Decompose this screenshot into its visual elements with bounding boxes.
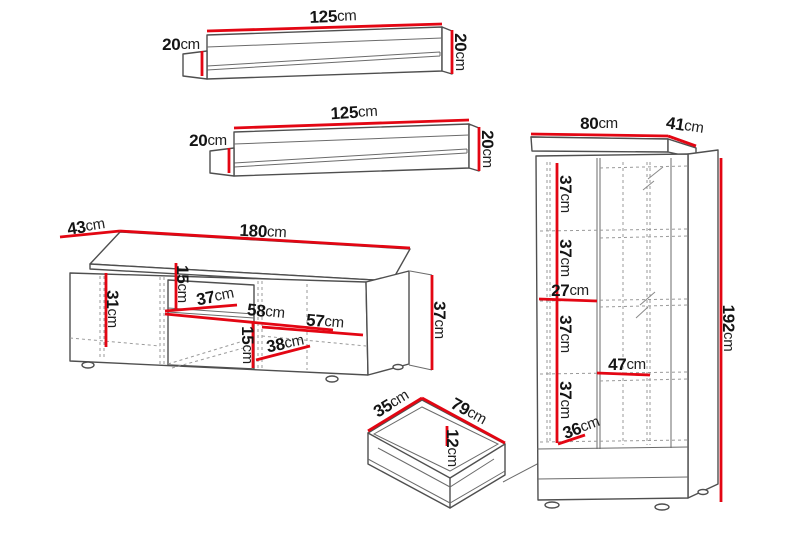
dim-tv-width: 180cm (239, 220, 287, 241)
dim-cab-shelf-gap-4: 37cm (557, 381, 576, 419)
dim-tv-inner-width-57: 57cm (305, 310, 344, 332)
dim-drawer-height: 12cm (444, 429, 463, 467)
dim-shelf1-depth: 20cm (162, 35, 200, 54)
furniture-dimension-diagram: 125cm 20cm 20cm 125cm 20cm 20cm (0, 0, 800, 533)
dim-cab-inner-width-27: 27cm (551, 281, 589, 300)
diagram-canvas: 125cm 20cm 20cm 125cm 20cm 20cm (0, 0, 800, 533)
dim-cab-shelf-gap-1: 37cm (557, 175, 576, 213)
dim-tv-niche-top-height: 15cm (174, 265, 193, 303)
dim-cab-depth: 41cm (665, 113, 705, 138)
dim-cab-width: 80cm (580, 114, 618, 133)
dim-tv-left-height: 31cm (104, 290, 123, 328)
dim-cab-shelf-gap-3: 37cm (557, 315, 576, 353)
wall-shelf-1-outline (183, 27, 452, 79)
drawer-drawing: 35cm 79cm 12cm (368, 385, 560, 508)
dim-cab-inner-width-47: 47cm (608, 355, 646, 374)
dim-shelf1-height: 20cm (452, 33, 471, 71)
cabinet-drawing: 80cm 41cm 37cm 37cm 27cm 37cm 47cm 37cm … (531, 113, 739, 510)
wall-shelf-2-drawing: 125cm 20cm 20cm (189, 101, 497, 176)
tv-stand-drawing: 43cm 180cm 31cm 15cm 37cm 58cm 57cm 15cm… (60, 214, 450, 382)
dim-tv-inner-width-58: 58cm (246, 300, 285, 323)
wall-shelf-2-outline (210, 124, 479, 176)
dim-shelf2-depth: 20cm (189, 131, 227, 150)
wall-shelf-1-drawing: 125cm 20cm 20cm (162, 6, 470, 79)
dim-tv-height: 37cm (431, 301, 450, 339)
dim-shelf1-width: 125cm (309, 6, 357, 27)
dim-cab-shelf-gap-2: 37cm (557, 239, 576, 277)
dim-shelf2-width: 125cm (330, 101, 378, 122)
dim-tv-depth: 43cm (66, 214, 106, 239)
dim-tv-niche-bottom-height: 15cm (239, 326, 258, 364)
dim-shelf2-height: 20cm (479, 130, 498, 168)
dim-cab-height: 192cm (720, 305, 739, 352)
